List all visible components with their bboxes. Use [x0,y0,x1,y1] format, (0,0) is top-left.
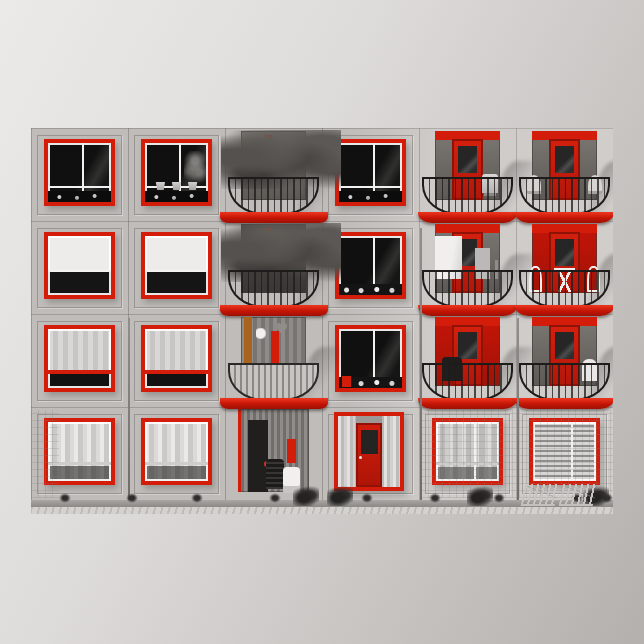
dark-shrub [467,486,493,506]
garden-lounger-chair [559,484,598,506]
dark-shrub [293,486,319,506]
red-window-frame [141,325,213,392]
window-r3c2 [128,314,225,407]
window-mid-rail [48,370,112,374]
window-r3c1 [31,314,128,407]
window-r2c1 [31,221,128,314]
red-window-frame [44,232,116,299]
red-entry-door [356,423,382,486]
balcony-r1c5: ♥ [419,128,516,221]
window-mullion-vertical [373,329,375,388]
window-mullion-vertical [179,143,181,202]
heart-balloon-icon: ♥ [275,322,288,337]
red-balcony-slab [220,398,328,409]
weed-plant [493,493,505,503]
open-dark-doorway [248,420,268,491]
balcony-r2c5: ♥ [419,221,516,314]
pavement [31,506,613,514]
garden-lounger-chair [521,484,560,506]
balcony-r2c3: ♥ [225,221,322,314]
red-window-frame [335,139,407,206]
door-transom [356,416,382,424]
balcony-r3c5: ♥ [419,314,516,407]
red-window-frame [44,325,116,392]
window-mullion-vertical [373,236,375,295]
sidelight-curtain-left [338,416,355,487]
window-mid-rail [145,370,209,374]
drainpipe [420,228,422,500]
wall-tiles [31,410,59,498]
red-balcony-slab [418,398,517,409]
door-glass-pane [458,332,478,359]
dark-shrub [327,486,353,506]
red-window-frame [335,325,407,392]
red-window-frame [335,232,407,299]
window-r1c2 [128,128,225,221]
door-glass-pane [458,146,478,173]
weed-plant [126,493,138,503]
window-r2c2 [128,221,225,314]
door-glass-pane [555,332,575,359]
red-window-frame [141,139,213,206]
satellite-dish-icon [256,328,266,340]
door-handle [359,456,362,459]
weed-plant [269,493,281,503]
window-mullion-vertical [82,143,84,202]
red-panel [287,439,296,464]
window-mullion-horizontal [339,186,403,188]
balcony-r1c3: ♥ [225,128,322,221]
balcony-r3c3: ♥ [225,314,322,407]
weed-plant [191,493,203,503]
window-r1c1 [31,128,128,221]
balcony-r1c6: ♥ [516,128,613,221]
weed-plant [429,493,441,503]
red-entry-frame [334,412,405,491]
weed-plant [361,493,373,503]
red-window-frame [141,232,213,299]
door-glass-pane [361,430,378,455]
red-window-frame [44,139,116,206]
balcony-r2c6: ♥ [516,221,613,314]
drainpipe [128,318,130,500]
window-mid-rail [145,462,209,465]
red-balcony-slab [515,398,613,409]
door-glass-pane [555,146,575,173]
poster-photo: ♥ ♥ [31,128,613,514]
window-mullion-horizontal [48,186,112,188]
sidelight-curtain-right [384,416,401,487]
red-door-frame-strip [238,409,242,492]
drainpipe [517,318,519,500]
weed-plant [59,493,71,503]
red-window-frame [141,418,213,485]
flower-pots [150,182,204,191]
window-r4c2 [128,407,225,500]
black-office-chair [266,459,284,489]
window-mullion-vertical [373,143,375,202]
balcony-r3c6: ♥ [516,314,613,407]
